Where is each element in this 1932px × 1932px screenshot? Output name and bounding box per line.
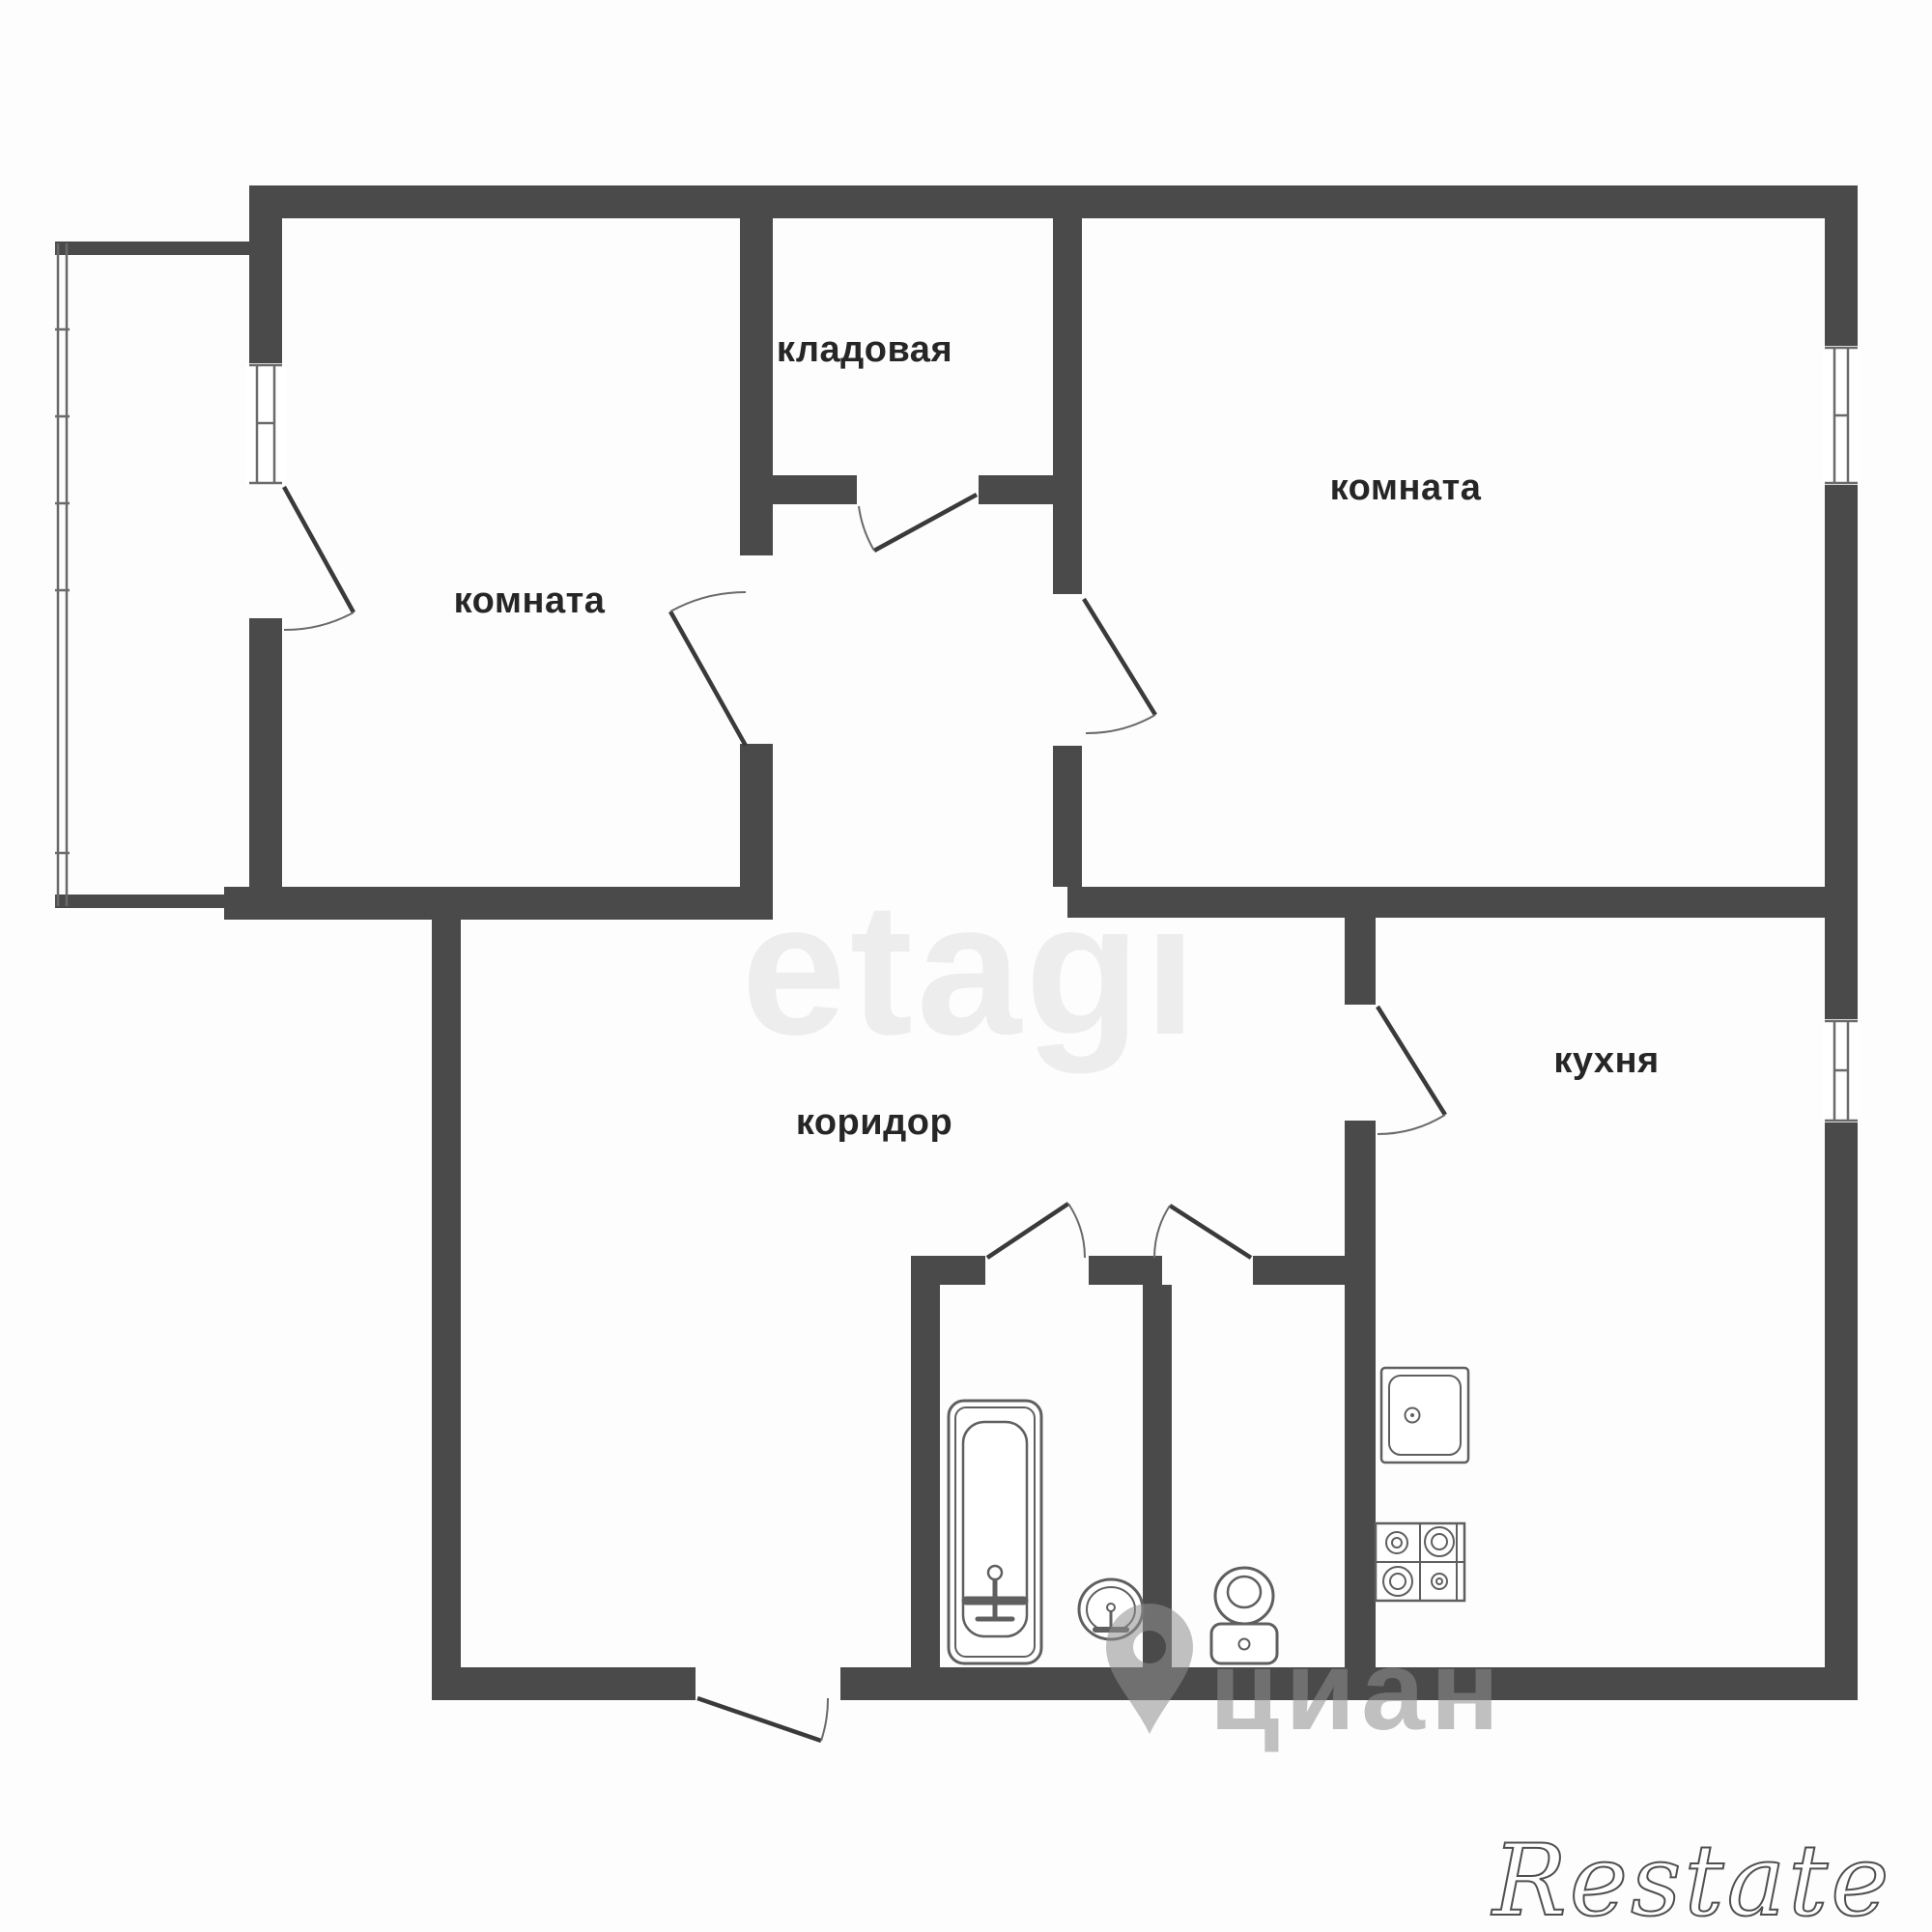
label-corridor: коридор xyxy=(796,1102,952,1143)
wall-corridor-left xyxy=(432,887,461,1700)
wall-right-lower xyxy=(1825,1121,1858,1700)
wall-bath-north-center xyxy=(1089,1256,1162,1285)
wall-balcony-bottom xyxy=(55,895,249,908)
label-storage: кладовая xyxy=(777,329,952,370)
wall-storage-south-left xyxy=(773,475,857,504)
wall-room-left-east-upper xyxy=(740,218,773,555)
bathtub xyxy=(949,1401,1041,1663)
wall-kitchen-west-upper xyxy=(1345,918,1376,1005)
kitchen-window xyxy=(1823,1019,1860,1122)
wall-room-left-east-lower xyxy=(740,744,773,920)
stove xyxy=(1376,1523,1464,1601)
wall-top xyxy=(249,185,1858,218)
label-kitchen: кухня xyxy=(1553,1040,1659,1081)
kitchen-sink xyxy=(1381,1368,1468,1463)
wall-balcony-top xyxy=(55,241,249,255)
wall-right-middle xyxy=(1825,483,1858,1021)
wall-room-left-south xyxy=(224,887,740,920)
wall-kitchen-west-lower xyxy=(1345,1121,1376,1700)
watermark-cian-text: циан xyxy=(1209,1627,1505,1754)
room-right-window xyxy=(1823,346,1860,485)
wall-storage-east-lower xyxy=(1053,746,1082,887)
wall-bottom-left xyxy=(432,1667,696,1700)
wall-room-left-west-lower xyxy=(249,618,282,920)
wall-right-upper xyxy=(1825,218,1858,348)
wall-storage-east-upper xyxy=(1053,218,1082,594)
wall-bath-west xyxy=(911,1256,940,1700)
watermark-restate: Restate xyxy=(1491,1824,1892,1932)
label-room-right: комната xyxy=(1330,468,1482,508)
wall-bath-north-right xyxy=(1253,1256,1345,1285)
wall-room-left-west-upper xyxy=(249,218,282,365)
floor-plan-canvas: etagi xyxy=(0,0,1932,1932)
label-room-left: комната xyxy=(454,581,606,621)
wall-room-right-south xyxy=(1067,887,1825,918)
room-left-window xyxy=(245,363,286,485)
